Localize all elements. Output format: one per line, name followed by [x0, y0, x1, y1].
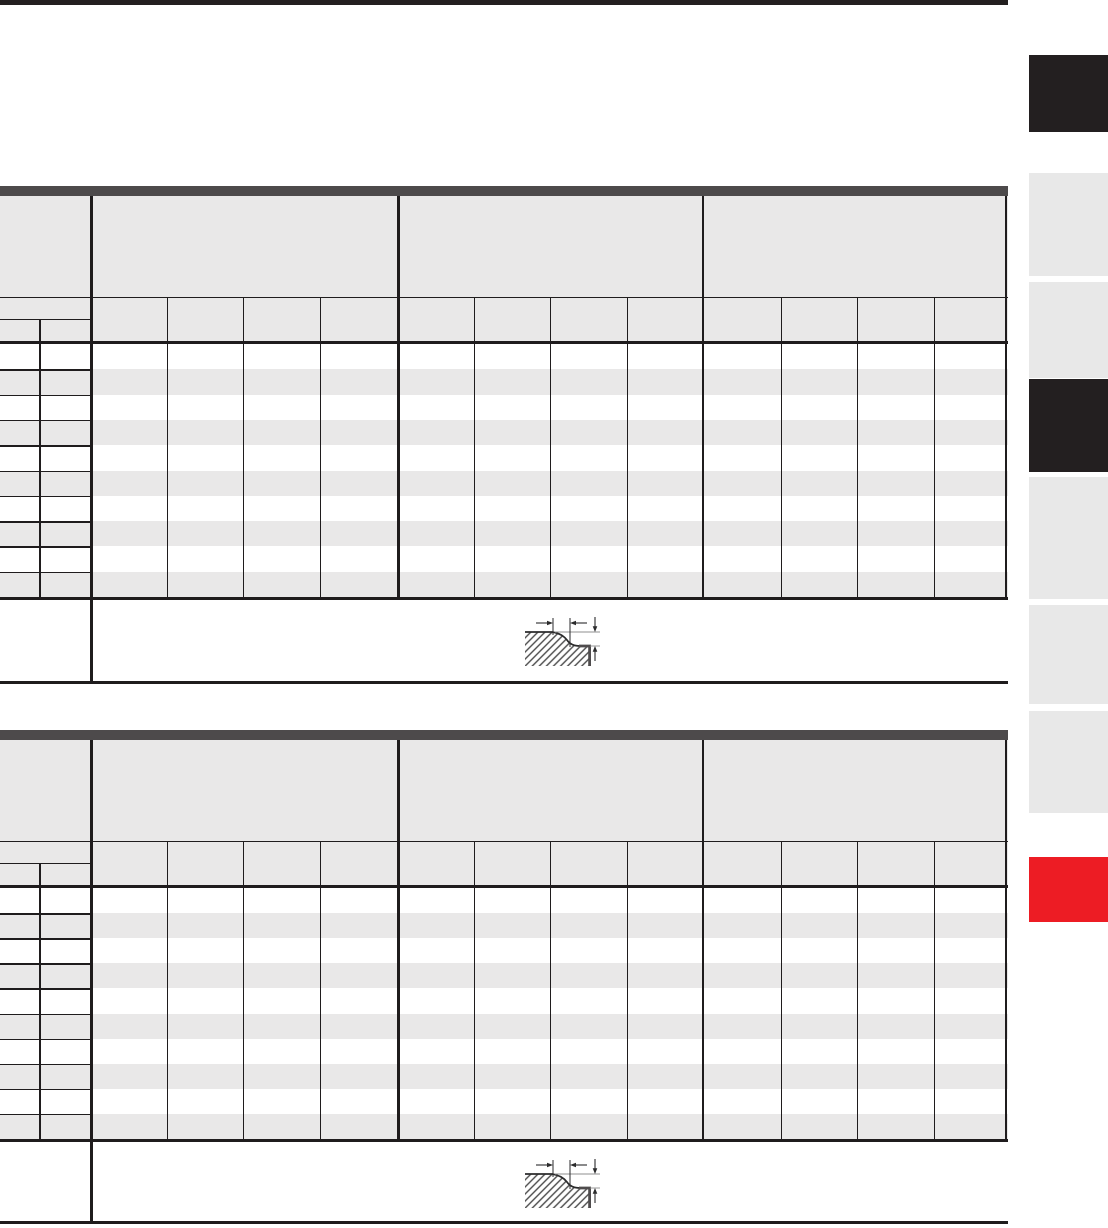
row-header-divider: [0, 572, 91, 574]
size-subcol-header-b: [39, 319, 91, 341]
column-header-cell-8: [627, 841, 703, 885]
step-profile-drawing: [503, 614, 613, 676]
row-header-divider: [0, 913, 91, 915]
group-divider-vline: [702, 740, 704, 1139]
footer-size-cell: [0, 1142, 89, 1221]
column-group-header-cell-1: [91, 740, 398, 841]
row-header-divider: [0, 1089, 91, 1091]
column-header-cell-10: [781, 841, 857, 885]
row-header-divider: [0, 1064, 91, 1066]
column-vline: [167, 297, 168, 597]
v-dim-arrow-down: [593, 1168, 598, 1174]
side-tab-7-gray: [1029, 711, 1108, 813]
hatched-section: [525, 632, 589, 666]
column-header-cell-9: [703, 841, 781, 885]
footer-drawing-wrap: [503, 1156, 613, 1223]
column-header-cell-11: [857, 841, 934, 885]
group-divider-vline: [397, 196, 400, 597]
column-vline: [857, 841, 858, 1139]
column-header-cell-9: [703, 297, 781, 341]
footer-drawing-cell: [93, 600, 1008, 681]
v-dim-arrow-down: [593, 626, 598, 632]
row-header-divider: [0, 471, 91, 473]
column-vline: [934, 297, 935, 597]
column-vline: [550, 841, 551, 1139]
h-dim-arrow-right: [570, 1163, 576, 1168]
column-header-cell-3: [243, 297, 320, 341]
row-header-divider: [0, 1014, 91, 1016]
column-header-cell-12: [934, 297, 1008, 341]
column-group-header-cell-3: [703, 740, 1008, 841]
column-header-cell-2: [167, 297, 243, 341]
footer-size-cell: [0, 600, 89, 681]
column-header-cell-6: [474, 841, 550, 885]
column-vline: [627, 841, 628, 1139]
column-group-header-cell-3: [703, 196, 1008, 297]
row-header-divider: [0, 420, 91, 422]
column-header-cell-11: [857, 297, 934, 341]
column-header-cell-1: [91, 841, 167, 885]
side-tab-6-gray: [1029, 605, 1108, 704]
row-header-divider: [0, 395, 91, 397]
group-divider-vline: [1005, 196, 1007, 597]
side-tab-2-gray: [1029, 173, 1108, 276]
column-header-cell-4: [320, 297, 398, 341]
column-vline: [243, 297, 244, 597]
column-header-cell-5: [398, 297, 474, 341]
column-group-header-cell-2: [398, 740, 703, 841]
hatched-section: [525, 1174, 589, 1208]
column-header-cell-7: [550, 841, 627, 885]
column-header-cell-12: [934, 841, 1008, 885]
column-header-cell-1: [91, 297, 167, 341]
row-header-divider: [0, 369, 91, 371]
group-divider-vline: [397, 740, 400, 1139]
side-tab-5-gray: [1029, 477, 1108, 599]
column-header-cell-5: [398, 841, 474, 885]
v-dim-arrow-up: [593, 1188, 598, 1194]
table-bottom-rule: [0, 681, 1008, 684]
spec-table-upper: [0, 186, 1008, 684]
h-dim-arrow-right: [570, 621, 576, 626]
footer-drawing-cell: [93, 1142, 1008, 1221]
row-header-divider: [0, 546, 91, 548]
row-header-divider: [0, 445, 91, 447]
row-header-divider: [0, 963, 91, 965]
column-header-cell-7: [550, 297, 627, 341]
size-subcol-header-a: [0, 319, 39, 341]
size-group-header-cell: [0, 196, 91, 297]
column-vline: [320, 297, 321, 597]
side-tab-8-red: [1029, 857, 1108, 922]
row-header-divider: [0, 521, 91, 523]
row-header-divider: [0, 938, 91, 940]
size-header-cell: [0, 297, 91, 319]
column-vline: [857, 297, 858, 597]
group-divider-vline: [1005, 740, 1007, 1139]
size-subcol-vline: [39, 319, 41, 597]
column-vline: [243, 841, 244, 1139]
v-dim-arrow-up: [593, 646, 598, 652]
h-dim-arrow-left: [547, 1163, 553, 1168]
top-rule: [0, 0, 1008, 5]
column-vline: [781, 841, 782, 1139]
row-header-divider: [0, 1114, 91, 1116]
column-vline: [167, 841, 168, 1139]
table-accent-bar: [0, 186, 1008, 196]
column-header-cell-4: [320, 841, 398, 885]
step-profile-drawing: [503, 1156, 613, 1218]
column-header-cell-10: [781, 297, 857, 341]
column-header-cell-6: [474, 297, 550, 341]
h-dim-arrow-left: [547, 621, 553, 626]
catalog-page: [0, 0, 1108, 1228]
size-subcol-header-b: [39, 863, 91, 885]
column-header-cell-3: [243, 841, 320, 885]
size-header-cell: [0, 841, 91, 863]
size-group-header-cell: [0, 740, 91, 841]
side-tab-4-dark: [1029, 379, 1108, 472]
column-vline: [550, 297, 551, 597]
column-header-cell-2: [167, 841, 243, 885]
side-tab-3-gray: [1029, 282, 1108, 378]
column-group-header-cell-2: [398, 196, 703, 297]
spec-table-lower: [0, 730, 1008, 1224]
size-subcol-vline: [39, 863, 41, 1139]
group-divider-vline: [702, 196, 704, 597]
column-vline: [474, 841, 475, 1139]
column-vline: [934, 841, 935, 1139]
column-vline: [781, 297, 782, 597]
column-group-header-cell-1: [91, 196, 398, 297]
column-header-cell-8: [627, 297, 703, 341]
grid-hline: [0, 319, 91, 320]
column-vline: [627, 297, 628, 597]
column-vline: [474, 297, 475, 597]
column-vline: [320, 841, 321, 1139]
grid-hline: [0, 863, 91, 864]
footer-drawing-wrap: [503, 614, 613, 681]
size-subcol-header-a: [0, 863, 39, 885]
row-header-divider: [0, 988, 91, 990]
row-header-divider: [0, 496, 91, 498]
row-header-divider: [0, 1039, 91, 1041]
side-tab-1-dark: [1029, 55, 1108, 132]
table-accent-bar: [0, 730, 1008, 740]
